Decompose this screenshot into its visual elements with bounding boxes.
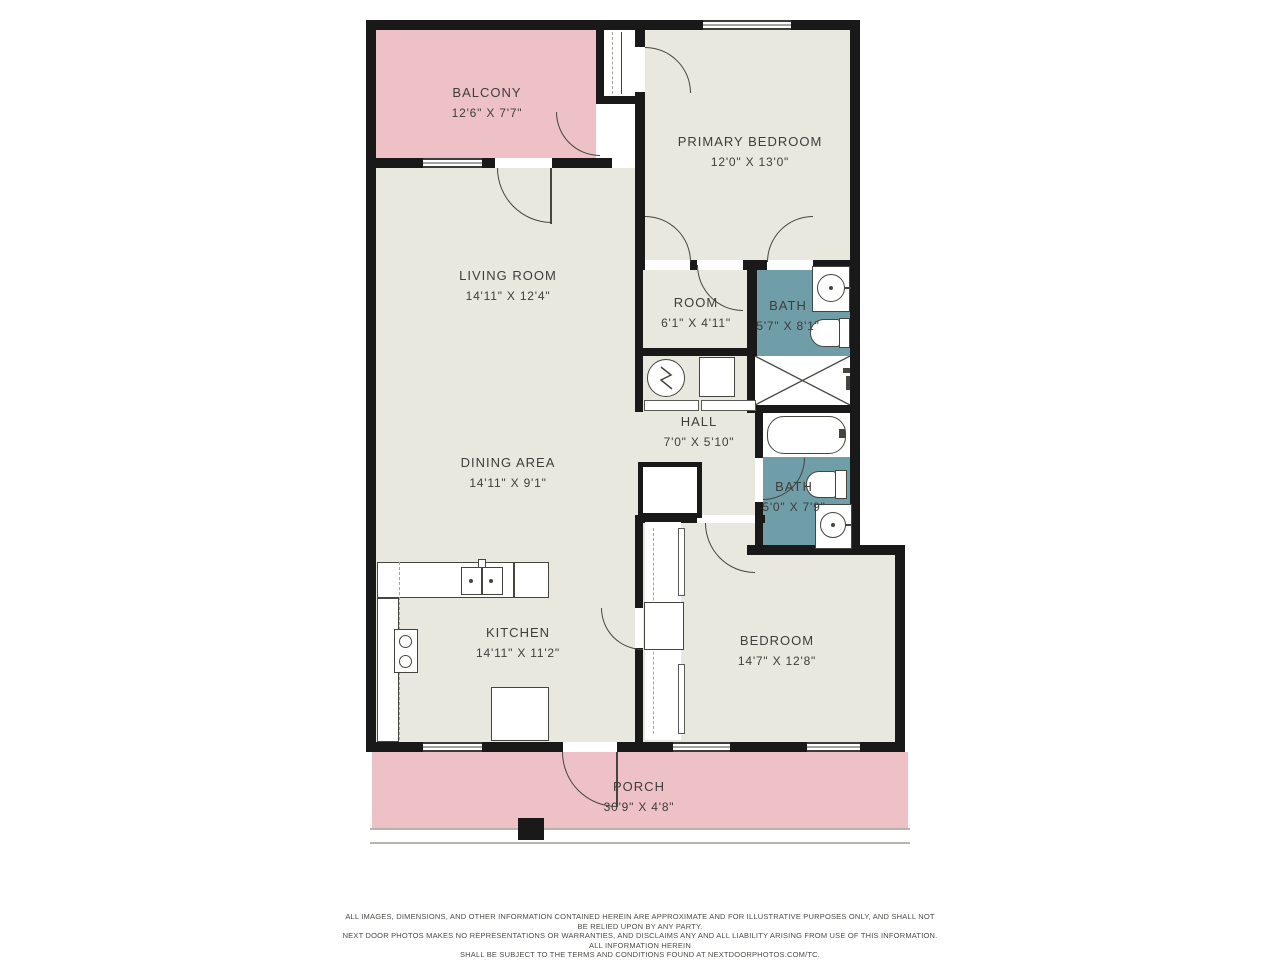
door-leaf-balcony [550, 168, 552, 224]
room-dims: 6'1" X 4'11" [661, 316, 731, 330]
wall-hall-left [635, 270, 643, 412]
washer [647, 359, 685, 397]
label-bedroom: BEDROOM 14'7" X 12'8" [738, 633, 816, 668]
bath2-toilet-tank [835, 470, 847, 499]
label-hall: HALL 7'0" X 5'10" [664, 414, 735, 449]
bath1-sink-drain [829, 286, 833, 290]
room-name: LIVING ROOM [459, 268, 557, 283]
door-opening-balcony [495, 158, 552, 168]
washer-zigzag-icon [648, 360, 683, 395]
room-name: BEDROOM [738, 633, 816, 648]
wall-balcony-closet [596, 20, 604, 96]
label-primary-bedroom: PRIMARY BEDROOM 12'0" X 13'0" [678, 134, 823, 169]
wall-shower-bottom [747, 405, 860, 413]
door-opening-bedroom [697, 515, 755, 523]
room-dims: 5'0" X 7'9" [762, 500, 825, 514]
bedroom-entry-nook [644, 602, 684, 650]
disclaimer-line-1: ALL IMAGES, DIMENSIONS, AND OTHER INFORM… [340, 912, 940, 931]
water-heater-closet [638, 462, 702, 518]
stove-burner-2 [399, 655, 412, 668]
label-living-room: LIVING ROOM 14'11" X 12'4" [459, 268, 557, 303]
window-porch-3 [807, 742, 860, 752]
shower-head [846, 376, 850, 390]
room-dims: 12'0" X 13'0" [678, 155, 823, 169]
room-dims: 7'0" X 5'10" [664, 435, 735, 449]
shower-glass-x [755, 356, 850, 405]
floor-plan-canvas: BALCONY 12'6" X 7'7" PRIMARY BEDROOM 12'… [0, 0, 1280, 960]
disclaimer-line-3: SHALL BE SUBJECT TO THE TERMS AND CONDIT… [340, 950, 940, 960]
dryer [699, 357, 735, 397]
kitchen-sink-drain-left [469, 579, 473, 583]
laundry-bifold-left [644, 400, 699, 411]
wall-bedroom-left-b [635, 648, 643, 742]
wall-balcony-bottom [366, 158, 612, 168]
disclaimer-line-2: NEXT DOOR PHOTOS MAKES NO REPRESENTATION… [340, 931, 940, 950]
disclaimer-text: ALL IMAGES, DIMENSIONS, AND OTHER INFORM… [340, 912, 940, 960]
porch-post [518, 818, 544, 840]
room-name: ROOM [661, 295, 731, 310]
closet-rod-dash-top [612, 32, 613, 94]
kitchen-faucet [478, 559, 486, 568]
room-dims: 30'9" X 4'8" [604, 800, 675, 814]
stove-burner-1 [399, 635, 412, 648]
balcony-closet-floor [604, 30, 635, 96]
room-dims: 14'7" X 12'8" [738, 654, 816, 668]
bedroom-closet-bifold-a [678, 528, 685, 596]
wall-bedroom-left-a [635, 523, 643, 608]
kitchen-counter-divider [513, 562, 515, 598]
bathtub-faucet [839, 429, 845, 438]
room-dims: 14'11" X 11'2" [476, 646, 560, 660]
room-name: BATH [756, 298, 819, 313]
bath1-toilet-tank [839, 318, 850, 348]
room-dims: 12'6" X 7'7" [452, 106, 523, 120]
wall-right-lower [895, 545, 905, 752]
bathtub [767, 416, 846, 454]
room-name: KITCHEN [476, 625, 560, 640]
room-name: PORCH [604, 779, 675, 794]
label-bath2: BATH 5'0" X 7'9" [762, 479, 825, 514]
door-opening-primary-entry [635, 47, 645, 92]
label-porch: PORCH 30'9" X 4'8" [604, 779, 675, 814]
label-room: ROOM 6'1" X 4'11" [661, 295, 731, 330]
wall-right-upper [850, 20, 860, 555]
room-dims: 14'11" X 12'4" [459, 289, 557, 303]
porch-edge-step [370, 828, 910, 844]
room-name: HALL [664, 414, 735, 429]
door-opening-porch [563, 742, 617, 752]
laundry-bifold-right [701, 400, 756, 411]
window-porch-1 [423, 742, 482, 752]
label-dining-area: DINING AREA 14'11" X 9'1" [461, 455, 556, 490]
label-balcony: BALCONY 12'6" X 7'7" [452, 85, 523, 120]
room-name: BATH [762, 479, 825, 494]
bath2-sink-faucet [845, 524, 852, 526]
window-porch-2 [673, 742, 730, 752]
room-dims: 14'11" X 9'1" [461, 476, 556, 490]
room-name: PRIMARY BEDROOM [678, 134, 823, 149]
refrigerator [491, 687, 549, 741]
room-dims: 5'7" X 8'1" [756, 319, 819, 333]
kitchen-sink-divider [481, 567, 483, 595]
closet-rod-top [621, 32, 622, 94]
window-primary-top [703, 20, 791, 30]
bath2-sink-drain [831, 523, 835, 527]
bath1-sink-faucet [844, 287, 851, 289]
room-name: DINING AREA [461, 455, 556, 470]
label-bath1: BATH 5'7" X 8'1" [756, 298, 819, 333]
entry-closet-floor [604, 104, 635, 158]
room-name: BALCONY [452, 85, 523, 100]
window-balcony [423, 158, 482, 168]
wall-laundry-top [635, 348, 757, 356]
shower-valve [843, 368, 850, 373]
wall-left [366, 20, 376, 752]
kitchen-sink-drain-right [489, 579, 493, 583]
label-kitchen: KITCHEN 14'11" X 11'2" [476, 625, 560, 660]
bedroom-closet-bifold-b [678, 664, 685, 734]
